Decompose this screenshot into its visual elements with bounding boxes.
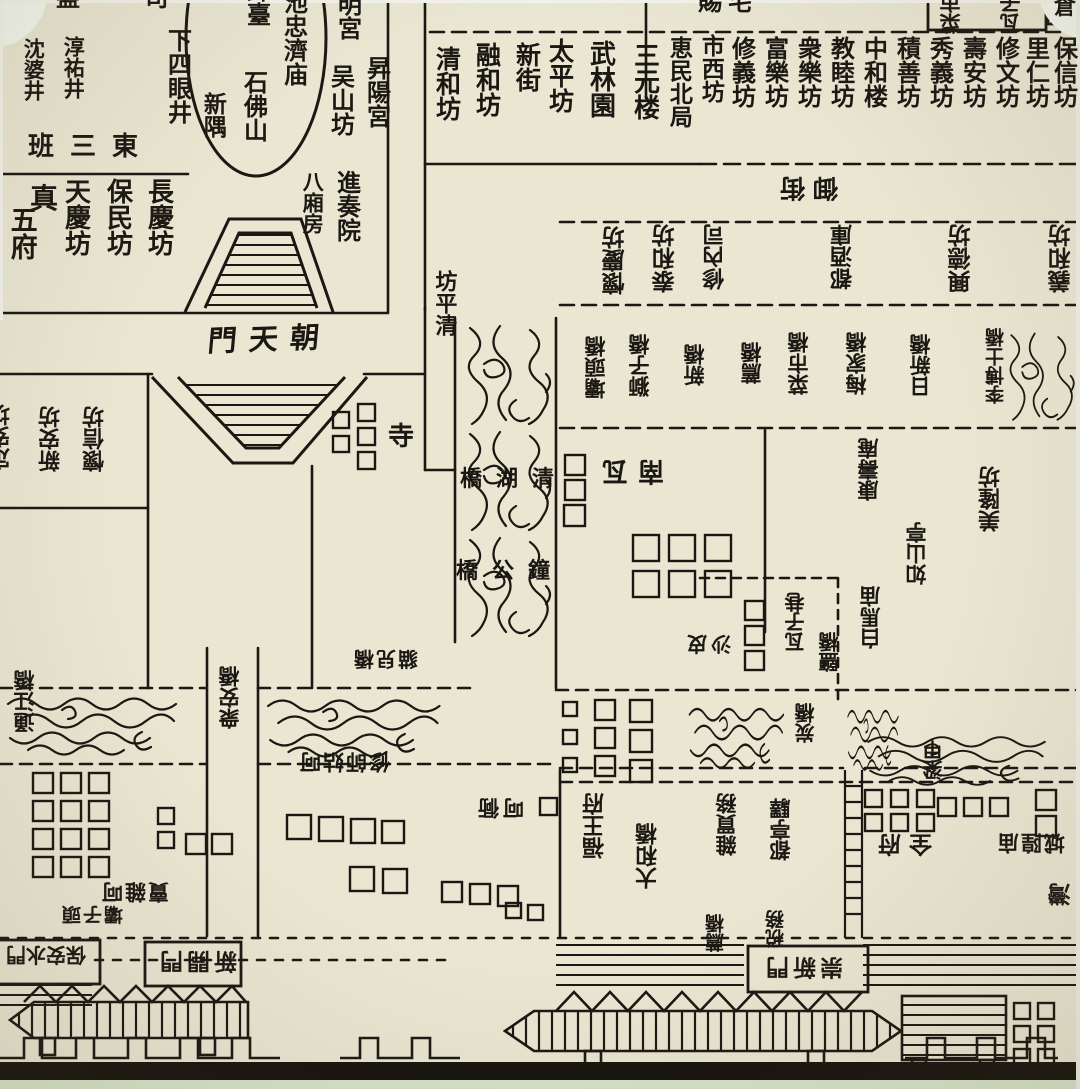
map-label-li-ren-fang: 里仁坊: [1022, 36, 1047, 108]
map-label-yu-jie: 御街: [772, 174, 838, 201]
map-label-qing-ping-fang: 坊平清: [432, 270, 455, 336]
map-label-yan-qiao: 鹽橋: [820, 632, 841, 672]
map-label-ci-zhai-partial: 賜宅: [698, 0, 758, 15]
map-label-za-mai-wu: 雜買務: [716, 793, 738, 856]
map-label-xiu-yi2-fang: 秀義坊: [926, 36, 951, 108]
map-label-xiu-nei-si: 修內司: [704, 224, 727, 290]
map-label-ba-tou-qiao: 壩頭橋: [585, 336, 607, 399]
map-label-shui-wu: 税務: [766, 910, 786, 948]
map-label-ri-xin-qiao: 日新橋: [910, 334, 932, 397]
map-label-chun-you-jing: 淳祐井: [62, 36, 84, 99]
map-label-bao-xin-fang: 保信坊: [1050, 36, 1075, 108]
map-label-xiu-yi-fang: 修義坊: [728, 36, 753, 108]
map-label-du-ting-yi: 都亭驛: [770, 798, 792, 861]
map-label-shou-an-fang: 壽安坊: [959, 36, 984, 108]
map-label-ji-shan-fang: 積善坊: [893, 36, 918, 108]
map-label-xin-jie: 新街: [513, 42, 540, 92]
map-label-da-he-qiao: 大和橋: [637, 823, 660, 889]
map-label-du-jiu-ku: 都酒庫: [832, 224, 855, 290]
map-label-chao-tian-men: 門天朝: [206, 322, 332, 357]
map-label-san-yuan-lou: 三元楼: [630, 42, 658, 120]
map-label-huai-xin-fang: 懷信坊: [84, 406, 107, 472]
map-label-mai-za-he: 賣雜呵: [100, 880, 169, 902]
map-label-mao-er-qiao: 貓兒橋: [352, 648, 418, 669]
map-label-gate-bao-an-shui-men: 保安水門: [6, 944, 86, 965]
map-label-zhong-he-lou: 中和楼: [860, 36, 885, 108]
map-label-sheng-yang-gong: 昇陽宮: [363, 56, 388, 128]
map-label-box-wa-zi: 瓦子: [1000, 0, 1022, 34]
map-label-mei-jia-qiao: 梅家橋: [846, 332, 868, 395]
woodblock-city-map: 盤 司沈婆井淳祐井下四眼井鉢臺池忠濟庙明宮新隅石佛山吴山坊昇陽宮班三東長慶坊保民…: [0, 0, 1080, 1089]
map-label-fu-le-fang: 富樂坊: [761, 36, 786, 108]
map-label-huai-qing-fang: 懷慶坊: [604, 226, 628, 295]
map-label-zhong-an-qiao: 衆安橋: [219, 666, 241, 729]
map-label-dong-san-ban: 班三東: [28, 134, 154, 162]
map-label-shi-xi-fang: 市西坊: [698, 34, 722, 103]
map-label-shi-fo-shan: 石佛山: [240, 70, 265, 142]
map-label-partial-top-si: 盤 司: [56, 0, 196, 11]
map-label-kang-shou-an: 康壽庵: [858, 438, 880, 501]
map-label-tan-qiao: 炭橋: [796, 703, 817, 743]
map-label-quan-fu: 全府: [870, 831, 932, 855]
map-label-tai-ping-fang: 太平坊: [546, 38, 573, 113]
map-label-sha-pi-xiang: 沙皮: [683, 633, 731, 654]
map-label-jiao-mu-fang: 教睦坊: [827, 36, 852, 108]
map-label-jian-qiao: 薦橋: [741, 342, 763, 384]
map-label-cang-partial: 倉: [1054, 0, 1076, 19]
map-label-tai-he-fang: 泰和坊: [654, 224, 678, 293]
map-label-wu-fu: 五府: [6, 206, 35, 260]
map-label-he-tong: 呵衕: [474, 796, 524, 818]
map-label-tian-qing-fang: 天慶坊: [61, 178, 89, 256]
map-label-wu-shan-fang: 吴山坊: [327, 64, 352, 136]
map-label-cheng-huang-miao: 城隍庙: [996, 831, 1065, 853]
map-label-hui-min-bei-ju: 恵民北局: [666, 36, 690, 128]
map-label-xin-yu: 新隅: [200, 92, 224, 138]
map-label-xiu-wen-fang: 修文坊: [992, 36, 1017, 108]
map-label-jian-qiao-small: 薦橋: [706, 914, 726, 952]
map-label-chi-zhong-ji-miao: 池忠濟庙: [280, 0, 305, 86]
map-label-tong-jiang-qiao: 通江橋: [14, 670, 36, 733]
map-label-gate-chong-xin-men: 崇新門: [762, 954, 843, 978]
map-label-zhong-le-fang: 衆樂坊: [794, 36, 819, 108]
map-label-yi-he-fang: 義和坊: [1050, 224, 1074, 293]
map-label-ba-zi-tou: 壩子頭: [60, 904, 123, 924]
map-label-chang-qing-fang: 長慶坊: [144, 178, 172, 256]
map-label-qing-he-fang: 清和坊: [433, 46, 460, 121]
map-label-mei-long-fang: 美隆坊: [980, 466, 1003, 532]
map-label-gate-xin-kai-men: 新開門: [156, 948, 237, 972]
map-label-si-temple: 寺: [388, 424, 414, 452]
map-label-shi-zi-qiao: 獅子橋: [629, 334, 651, 397]
map-label-xin-an-fang: 新安坊: [40, 406, 63, 472]
map-label-qing-hu-qiao: 橋湖清: [460, 468, 568, 491]
map-label-ding-an-fang-partial: 定安坊: [0, 404, 13, 470]
map-label-ming-gong-partial: 明宮: [334, 0, 359, 40]
map-label-liang-jia: 梁甲: [924, 740, 945, 780]
map-label-rong-he-fang: 融和坊: [473, 42, 500, 117]
map-label-wan-partial: 灣: [1050, 883, 1074, 906]
map-label-xia-si-yan-jing: 下四眼井: [164, 28, 189, 124]
map-label-xing-de-fang: 興德坊: [950, 224, 974, 293]
map-label-fu-wang-fu: 福王府: [584, 793, 607, 859]
map-label-li-bo-shi-qiao: 李博士橋: [986, 328, 1006, 404]
map-labels-layer: 盤 司沈婆井淳祐井下四眼井鉢臺池忠濟庙明宮新隅石佛山吴山坊昇陽宮班三東長慶坊保民…: [0, 0, 1080, 1089]
map-label-ru-shan-ting: 如山亭: [906, 522, 928, 585]
map-label-ba-xiang-fang: 八廂房: [301, 171, 323, 234]
map-label-tai-partial: 鉢臺: [243, 0, 268, 26]
map-label-cai-shi-qiao: 菜市橋: [788, 332, 810, 395]
map-label-box-cai-shi: 菜市: [940, 0, 962, 34]
map-label-shen-po-jing: 沈婆井: [22, 38, 44, 101]
map-label-jin-zou-yuan: 進奏院: [333, 170, 358, 242]
map-label-xiu-shi-gu-he: 修師姑呵: [298, 750, 390, 772]
map-label-wu-lin-yuan: 武林園: [586, 40, 614, 118]
map-label-bao-min-fang: 保民坊: [103, 178, 131, 256]
map-label-wa-zi-xiang: 瓦子巷: [786, 592, 807, 652]
map-label-bai-ma-miao: 白馬庙: [860, 586, 882, 649]
map-label-zhong-gong-qiao: 橋公鐘: [456, 560, 564, 583]
map-label-nan-wa: 南瓦: [592, 456, 664, 484]
map-label-xin-qiao: 新橋: [684, 344, 706, 386]
